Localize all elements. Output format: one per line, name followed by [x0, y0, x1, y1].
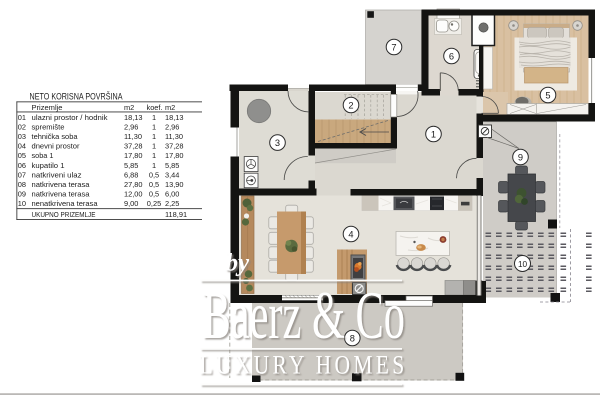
svg-text:2: 2 — [348, 100, 353, 110]
svg-text:13,90: 13,90 — [165, 180, 184, 189]
svg-text:2,96: 2,96 — [165, 123, 179, 132]
svg-text:01: 01 — [18, 113, 26, 122]
svg-text:12,00: 12,00 — [124, 190, 143, 199]
svg-text:9,00: 9,00 — [124, 199, 138, 208]
svg-text:UKUPNO PRIZEMLJE: UKUPNO PRIZEMLJE — [32, 210, 96, 219]
svg-text:06: 06 — [18, 161, 26, 170]
svg-text:3,44: 3,44 — [165, 170, 179, 179]
svg-text:02: 02 — [18, 123, 26, 132]
svg-text:6: 6 — [449, 51, 454, 61]
svg-text:5,85: 5,85 — [124, 161, 138, 170]
svg-text:11,30: 11,30 — [165, 132, 183, 141]
svg-text:0,5: 0,5 — [149, 190, 159, 199]
svg-text:0,5: 0,5 — [149, 180, 159, 189]
svg-text:5,85: 5,85 — [165, 161, 179, 170]
svg-text:27,80: 27,80 — [124, 180, 143, 189]
svg-text:dnevni prostor: dnevni prostor — [32, 142, 81, 151]
svg-text:5: 5 — [545, 90, 550, 100]
svg-text:03: 03 — [18, 132, 26, 141]
svg-text:09: 09 — [18, 190, 26, 199]
svg-text:soba 1: soba 1 — [32, 151, 54, 160]
svg-text:ulazni prostor / hodnik: ulazni prostor / hodnik — [32, 113, 108, 122]
svg-text:1: 1 — [152, 113, 156, 122]
svg-text:1: 1 — [152, 161, 156, 170]
svg-text:1: 1 — [152, 132, 156, 141]
svg-text:6,00: 6,00 — [165, 190, 179, 199]
svg-text:kupatilo 1: kupatilo 1 — [32, 161, 65, 170]
svg-text:3: 3 — [275, 138, 280, 148]
svg-text:tehnička soba: tehnička soba — [32, 132, 79, 141]
svg-text:2,25: 2,25 — [165, 199, 179, 208]
svg-text:natkrivena terasa: natkrivena terasa — [32, 180, 91, 189]
svg-text:08: 08 — [18, 180, 26, 189]
svg-text:05: 05 — [18, 151, 26, 160]
svg-text:37,28: 37,28 — [165, 142, 184, 151]
svg-text:18,13: 18,13 — [124, 113, 143, 122]
svg-text:118,91: 118,91 — [165, 210, 187, 219]
svg-text:1: 1 — [152, 151, 156, 160]
svg-text:1: 1 — [152, 142, 156, 151]
svg-text:4: 4 — [348, 229, 353, 239]
svg-text:0,25: 0,25 — [147, 199, 161, 208]
svg-text:1: 1 — [431, 129, 436, 139]
svg-text:koef.: koef. — [147, 103, 163, 112]
svg-text:Prizemlje: Prizemlje — [32, 103, 63, 112]
svg-text:m2: m2 — [124, 103, 134, 112]
svg-text:m2: m2 — [165, 103, 175, 112]
svg-text:natkrivena terasa: natkrivena terasa — [32, 190, 91, 199]
svg-text:37,28: 37,28 — [124, 142, 143, 151]
svg-text:04: 04 — [18, 142, 26, 151]
svg-text:17,80: 17,80 — [165, 151, 184, 160]
svg-text:NETO KORISNA POVRŠINA: NETO KORISNA POVRŠINA — [30, 92, 123, 102]
svg-text:Baerz & Co: Baerz & Co — [203, 277, 406, 353]
svg-text:1: 1 — [152, 123, 156, 132]
svg-text:9: 9 — [518, 152, 523, 162]
svg-text:2,96: 2,96 — [124, 123, 138, 132]
svg-text:0,5: 0,5 — [149, 170, 159, 179]
svg-text:7: 7 — [391, 42, 396, 52]
svg-text:07: 07 — [18, 170, 26, 179]
svg-text:17,80: 17,80 — [124, 151, 143, 160]
svg-text:nenatkrivena terasa: nenatkrivena terasa — [32, 199, 99, 208]
svg-text:by: by — [226, 250, 250, 277]
svg-text:spremište: spremište — [32, 123, 65, 132]
svg-text:18,13: 18,13 — [165, 113, 184, 122]
svg-text:11,30: 11,30 — [124, 132, 142, 141]
svg-text:LUXURY HOMES: LUXURY HOMES — [200, 351, 408, 380]
svg-text:6,88: 6,88 — [124, 170, 138, 179]
svg-text:10: 10 — [518, 260, 528, 269]
svg-text:natkriveni ulaz: natkriveni ulaz — [32, 170, 82, 179]
svg-text:10: 10 — [18, 199, 26, 208]
